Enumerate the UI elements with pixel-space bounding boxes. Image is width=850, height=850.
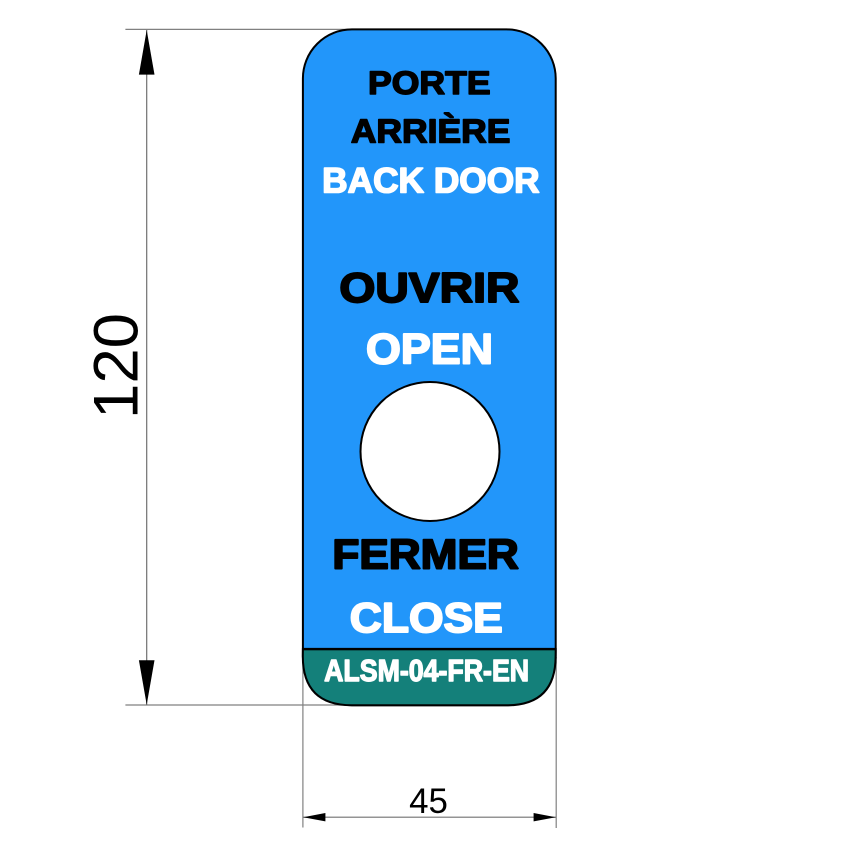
svg-text:45: 45 [409, 782, 448, 821]
svg-text:120: 120 [82, 313, 152, 419]
svg-text:BACK DOOR: BACK DOOR [322, 161, 540, 201]
svg-text:ALSM-04-FR-EN: ALSM-04-FR-EN [324, 653, 529, 688]
svg-text:OUVRIR: OUVRIR [339, 265, 519, 311]
svg-text:OPEN: OPEN [366, 326, 493, 373]
svg-text:CLOSE: CLOSE [350, 594, 503, 641]
svg-text:PORTE: PORTE [368, 64, 491, 101]
svg-text:FERMER: FERMER [332, 532, 519, 578]
svg-text:ARRIÈRE: ARRIÈRE [351, 112, 511, 150]
